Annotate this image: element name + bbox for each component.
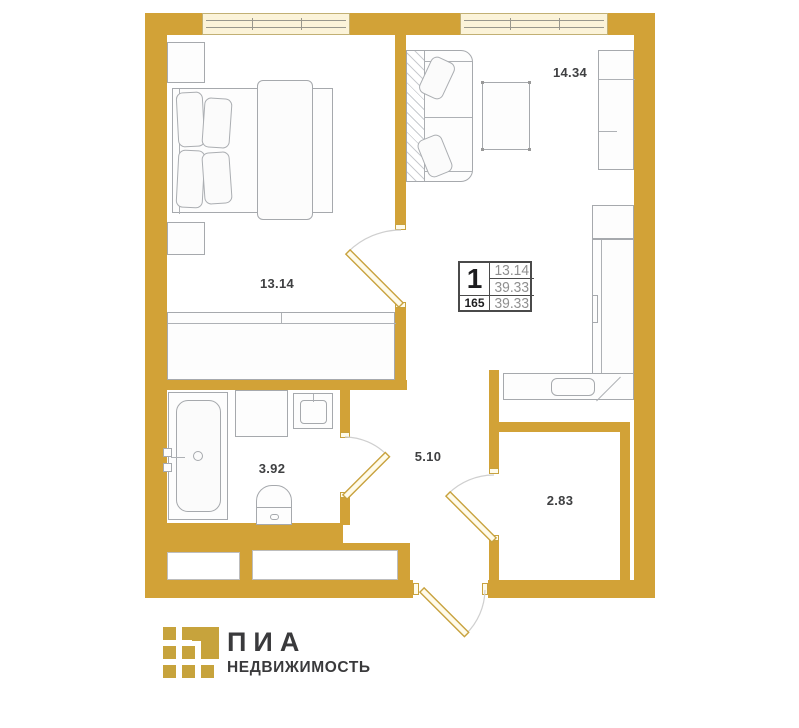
- room-label-living: 14.34: [544, 65, 596, 80]
- logo-square: [163, 627, 176, 640]
- door-leaf-bedroom: [346, 250, 403, 307]
- total-area-value: 39.33: [490, 279, 534, 296]
- door-arc-entrance: [466, 590, 485, 634]
- living-area-text: 13.14: [495, 262, 530, 279]
- door-leaf-bathroom: [343, 452, 390, 499]
- logo-square: [182, 665, 195, 678]
- logo-corner-shape: [201, 627, 219, 659]
- unit-info-table: 1 165 13.14 39.33 39.33: [458, 261, 532, 312]
- logo-square: [163, 646, 176, 659]
- logo-subtitle: НЕДВИЖИМОСТЬ: [227, 659, 371, 677]
- logo-square: [201, 665, 214, 678]
- unit-number: 165: [460, 296, 490, 310]
- door-leaf-storage: [446, 492, 496, 542]
- living-area-value: 13.14: [490, 263, 534, 279]
- total-area-text: 39.33: [495, 279, 530, 296]
- rooms-count: 1: [460, 263, 490, 296]
- room-label-bedroom: 13.14: [251, 276, 303, 291]
- door-arc-storage: [448, 475, 494, 494]
- door-arc-bathroom: [345, 437, 387, 455]
- doors-overlay: [0, 0, 799, 728]
- floor-plan-canvas: 13.14 14.34 3.92 5.10 2.83 1 165 13.14 3…: [0, 0, 799, 728]
- agency-logo: ПИА НЕДВИЖИМОСТЬ: [163, 627, 403, 687]
- room-label-hallway: 5.10: [402, 449, 454, 464]
- room-label-storage: 2.83: [534, 493, 586, 508]
- door-arc-bedroom: [348, 230, 401, 252]
- room-label-bathroom: 3.92: [246, 461, 298, 476]
- logo-square: [163, 665, 176, 678]
- total-area-repeat-text: 39.33: [495, 295, 530, 312]
- door-leaf-entrance: [420, 588, 469, 637]
- logo-title: ПИА: [227, 627, 306, 658]
- logo-square: [182, 646, 195, 659]
- total-area-repeat-value: 39.33: [490, 296, 534, 310]
